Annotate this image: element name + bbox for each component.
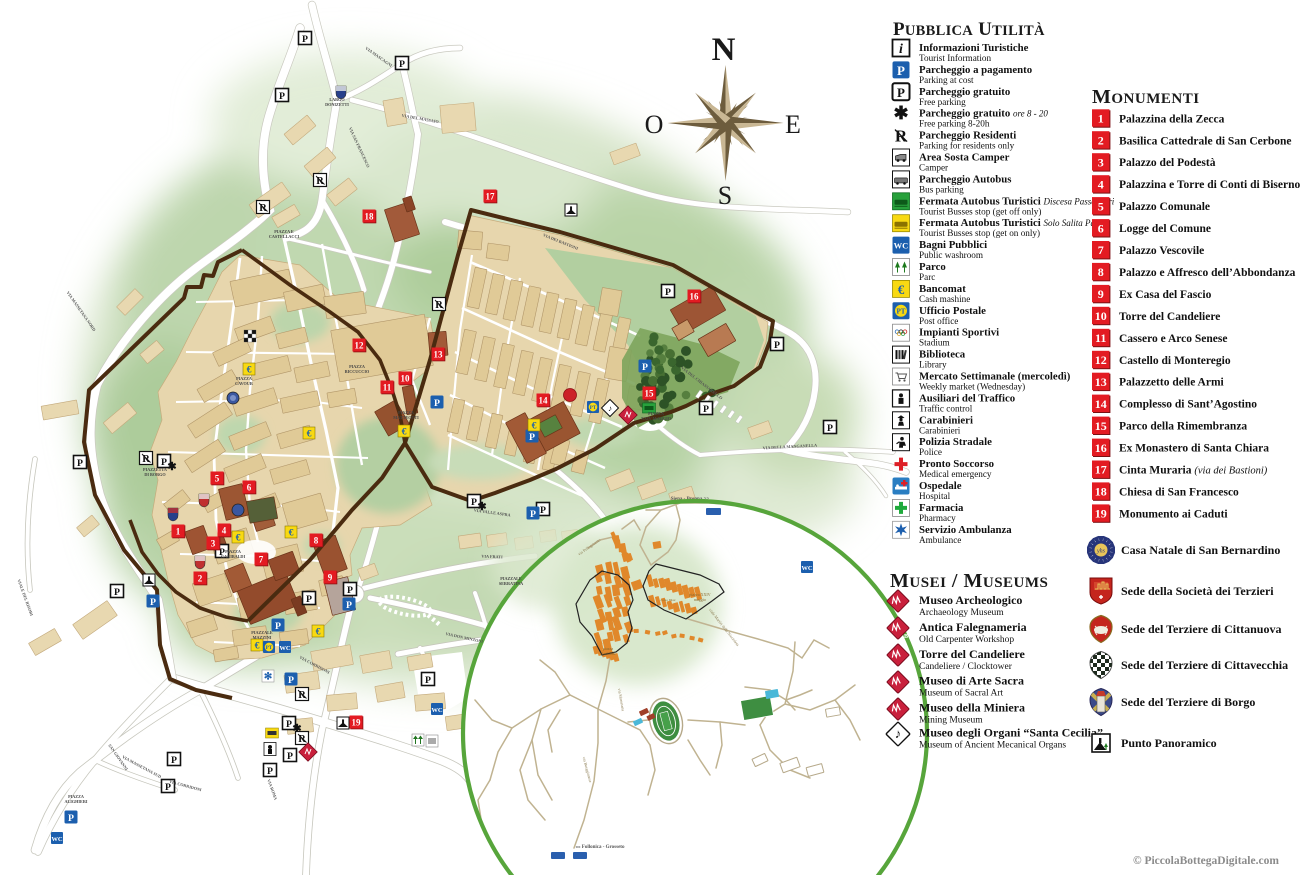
svg-text:P: P bbox=[642, 362, 648, 373]
svg-text:P: P bbox=[434, 398, 440, 409]
svg-text:€: € bbox=[532, 421, 537, 432]
svg-text:WC: WC bbox=[279, 645, 291, 652]
svg-text:2: 2 bbox=[198, 574, 203, 584]
svg-text:P: P bbox=[774, 340, 780, 351]
svg-text:Complesso di Sant’Agostino: Complesso di Sant’Agostino bbox=[1119, 399, 1257, 411]
svg-text:Casa Natale di San Bernardino: Casa Natale di San Bernardino bbox=[1121, 543, 1280, 557]
svg-text:Museum of Sacral Art: Museum of Sacral Art bbox=[919, 688, 1004, 699]
svg-text:Bus parking: Bus parking bbox=[919, 184, 964, 194]
svg-text:SERRATINA: SERRATINA bbox=[499, 581, 523, 586]
svg-text:P: P bbox=[267, 766, 273, 777]
svg-text:corso Diaz: corso Diaz bbox=[660, 598, 676, 602]
svg-text:E: E bbox=[904, 715, 908, 721]
svg-text:Mining Museum: Mining Museum bbox=[919, 716, 983, 726]
svg-text:7: 7 bbox=[259, 555, 264, 565]
svg-text:18: 18 bbox=[365, 212, 375, 222]
svg-text:S: S bbox=[718, 181, 732, 210]
svg-text:Pharmacy: Pharmacy bbox=[919, 513, 956, 523]
svg-text:€: € bbox=[316, 627, 321, 638]
svg-text:VIA FRATI: VIA FRATI bbox=[481, 554, 503, 560]
svg-text:Castello di Monteregio: Castello di Monteregio bbox=[1119, 355, 1231, 367]
svg-text:10: 10 bbox=[401, 374, 411, 384]
svg-text:Ex Casa del Fascio: Ex Casa del Fascio bbox=[1119, 289, 1212, 301]
svg-text:4: 4 bbox=[1098, 177, 1104, 191]
svg-text:© PiccolaBottegaDigitale.com: © PiccolaBottegaDigitale.com bbox=[1133, 855, 1279, 867]
svg-text:P: P bbox=[68, 813, 74, 824]
svg-text:Medical emergency: Medical emergency bbox=[919, 469, 992, 479]
svg-text:Camper: Camper bbox=[919, 163, 948, 173]
svg-text:6: 6 bbox=[247, 483, 252, 493]
svg-text:Parc: Parc bbox=[919, 272, 935, 282]
svg-text:✱: ✱ bbox=[167, 461, 176, 473]
svg-text:17: 17 bbox=[486, 192, 496, 202]
svg-text:3: 3 bbox=[1098, 155, 1104, 169]
svg-text:€: € bbox=[307, 429, 312, 440]
svg-text:Palazzetto delle Armi: Palazzetto delle Armi bbox=[1119, 377, 1225, 389]
svg-text:P: P bbox=[530, 509, 536, 520]
svg-text:Sede del Terziere di Borgo: Sede del Terziere di Borgo bbox=[1121, 695, 1255, 709]
svg-text:€: € bbox=[247, 365, 252, 376]
svg-text:P: P bbox=[279, 91, 285, 102]
svg-text:15: 15 bbox=[1095, 419, 1107, 433]
svg-text:Parco della Rimembranza: Parco della Rimembranza bbox=[1119, 421, 1247, 433]
svg-text:♪: ♪ bbox=[895, 726, 902, 741]
svg-text:P: P bbox=[171, 755, 177, 766]
svg-text:Candeliere / Clocktower: Candeliere / Clocktower bbox=[919, 662, 1013, 672]
svg-text:12: 12 bbox=[1095, 353, 1107, 367]
svg-text:MATTEOTTI: MATTEOTTI bbox=[393, 415, 419, 420]
svg-text:BICCUCCIO: BICCUCCIO bbox=[345, 369, 370, 374]
svg-text:WC: WC bbox=[801, 565, 813, 572]
svg-text:Free parking 8-20h: Free parking 8-20h bbox=[919, 119, 990, 129]
svg-text:Monumento ai Caduti: Monumento ai Caduti bbox=[1119, 508, 1228, 520]
svg-text:Museum of Ancient Mecanical Or: Museum of Ancient Mecanical Organs bbox=[919, 740, 1066, 751]
svg-text:14: 14 bbox=[539, 396, 549, 406]
svg-text:13: 13 bbox=[434, 350, 444, 360]
svg-text:15: 15 bbox=[645, 389, 655, 399]
svg-text:13: 13 bbox=[1095, 375, 1107, 389]
svg-text:P: P bbox=[827, 423, 833, 434]
svg-text:Traffic control: Traffic control bbox=[919, 403, 973, 413]
svg-text:16: 16 bbox=[690, 292, 700, 302]
svg-text:C: C bbox=[904, 661, 908, 667]
svg-text:DONIZETTI: DONIZETTI bbox=[325, 102, 349, 107]
svg-text:E: E bbox=[785, 110, 801, 139]
svg-text:Ambulance: Ambulance bbox=[919, 535, 961, 545]
svg-text:Palazzina e Torre di Conti di: Palazzina e Torre di Conti di Biserno bbox=[1119, 179, 1300, 191]
svg-text:maggio: maggio bbox=[694, 597, 706, 602]
svg-text:7: 7 bbox=[1098, 243, 1104, 257]
svg-text:WC: WC bbox=[431, 707, 443, 714]
svg-text:Ex Monastero di Santa Chiara: Ex Monastero di Santa Chiara bbox=[1119, 443, 1269, 455]
svg-text:PUBBLICA UTILITÀ: PUBBLICA UTILITÀ bbox=[893, 19, 1045, 40]
svg-text:P: P bbox=[540, 505, 546, 516]
svg-text:3: 3 bbox=[211, 539, 216, 549]
svg-text:Basilica Cattedrale di San Cer: Basilica Cattedrale di San Cerbone bbox=[1119, 135, 1292, 147]
svg-text:P: P bbox=[286, 719, 292, 730]
svg-text:GARIBALDI: GARIBALDI bbox=[221, 554, 246, 559]
svg-text:Logge del Comune: Logge del Comune bbox=[1119, 223, 1211, 235]
svg-text:CASTELLACCI: CASTELLACCI bbox=[269, 234, 300, 239]
svg-text:✻: ✻ bbox=[264, 672, 272, 683]
svg-text:€: € bbox=[289, 528, 294, 539]
svg-text:9: 9 bbox=[328, 573, 333, 583]
svg-text:O: O bbox=[645, 110, 664, 139]
svg-text:Museo della Miniera: Museo della Miniera bbox=[919, 701, 1025, 715]
svg-text:19: 19 bbox=[1095, 507, 1107, 521]
svg-text:P: P bbox=[77, 458, 83, 469]
svg-text:P: P bbox=[425, 675, 431, 686]
svg-text:♪: ♪ bbox=[608, 404, 612, 413]
svg-text:B: B bbox=[904, 634, 908, 640]
svg-text:P: P bbox=[665, 287, 671, 298]
svg-text:Hospital: Hospital bbox=[919, 491, 951, 501]
svg-text:Museo degli Organi “Santa Ceci: Museo degli Organi “Santa Cecilia” bbox=[919, 726, 1103, 740]
svg-text:Cassero e Arco Senese: Cassero e Arco Senese bbox=[1119, 333, 1228, 345]
svg-text:P: P bbox=[302, 34, 308, 45]
svg-text:Palazzo e Affresco dell’Abbond: Palazzo e Affresco dell’Abbondanza bbox=[1119, 267, 1296, 279]
svg-text:Stadium: Stadium bbox=[919, 338, 950, 348]
svg-text:Archaeology Museum: Archaeology Museum bbox=[919, 608, 1004, 618]
svg-text:€: € bbox=[255, 641, 260, 652]
svg-text:WC: WC bbox=[894, 241, 909, 251]
svg-text:P: P bbox=[399, 59, 405, 70]
svg-text:Tourist Information: Tourist Information bbox=[919, 53, 991, 63]
svg-text:P: P bbox=[306, 594, 312, 605]
svg-text:9: 9 bbox=[1098, 287, 1104, 301]
svg-text:Antica Falegnameria: Antica Falegnameria bbox=[919, 620, 1027, 634]
svg-text:P: P bbox=[150, 597, 156, 608]
svg-text:€: € bbox=[402, 427, 407, 438]
svg-text:XXIV MAGGIO: XXIV MAGGIO bbox=[641, 416, 672, 421]
svg-text:Palazzo del Podestà: Palazzo del Podestà bbox=[1119, 157, 1216, 169]
svg-text:P: P bbox=[275, 621, 281, 632]
svg-text:8: 8 bbox=[314, 536, 319, 546]
svg-text:P: P bbox=[114, 587, 120, 598]
svg-text:5: 5 bbox=[1098, 199, 1104, 213]
svg-text:P: P bbox=[529, 432, 535, 443]
svg-text:PT: PT bbox=[590, 405, 597, 411]
svg-text:Parking for residents only: Parking for residents only bbox=[919, 141, 1015, 151]
svg-text:Palazzo Vescovile: Palazzo Vescovile bbox=[1119, 245, 1204, 257]
svg-text:✱: ✱ bbox=[893, 103, 908, 123]
svg-text:Old Carpenter Workshop: Old Carpenter Workshop bbox=[919, 635, 1014, 645]
svg-text:Weekly market (Wednesday): Weekly market (Wednesday) bbox=[919, 382, 1025, 392]
svg-text:yhs: yhs bbox=[1096, 549, 1106, 555]
svg-text:Tourist Busses stop (get on on: Tourist Busses stop (get on only) bbox=[919, 228, 1040, 238]
svg-text:PT: PT bbox=[897, 307, 906, 315]
svg-text:Chiesa di San Francesco: Chiesa di San Francesco bbox=[1119, 486, 1239, 498]
svg-text:1: 1 bbox=[176, 527, 181, 537]
svg-text:12: 12 bbox=[355, 341, 365, 351]
svg-text:Parking at cost: Parking at cost bbox=[919, 75, 974, 85]
svg-text:N: N bbox=[712, 32, 736, 68]
svg-text:4: 4 bbox=[222, 526, 227, 536]
svg-text:MAZZINI: MAZZINI bbox=[253, 635, 272, 640]
svg-text:6: 6 bbox=[1098, 221, 1104, 235]
svg-text:17: 17 bbox=[1095, 463, 1107, 477]
svg-text:P: P bbox=[897, 63, 905, 78]
svg-text:11: 11 bbox=[1095, 331, 1106, 345]
svg-text:Police: Police bbox=[919, 447, 942, 457]
svg-text:18: 18 bbox=[1095, 485, 1107, 499]
svg-text:«« Follonica - Grosseto: «« Follonica - Grosseto bbox=[576, 845, 625, 850]
svg-text:i: i bbox=[899, 42, 903, 57]
svg-text:16: 16 bbox=[1095, 441, 1107, 455]
svg-text:Tourist Busses stop (get off o: Tourist Busses stop (get off only) bbox=[919, 206, 1041, 216]
svg-text:Library: Library bbox=[919, 360, 947, 370]
svg-text:Free parking: Free parking bbox=[919, 97, 966, 107]
svg-text:PT: PT bbox=[266, 645, 273, 651]
svg-text:Sede del Terziere di Cittavecc: Sede del Terziere di Cittavecchia bbox=[1121, 658, 1288, 672]
svg-text:A: A bbox=[904, 607, 909, 613]
svg-text:P: P bbox=[897, 85, 905, 100]
svg-text:Palazzo Comunale: Palazzo Comunale bbox=[1119, 201, 1210, 213]
svg-text:Punto Panoramico: Punto Panoramico bbox=[1121, 736, 1217, 750]
svg-text:Cash mashine: Cash mashine bbox=[919, 294, 970, 304]
svg-text:Torre del Candeliere: Torre del Candeliere bbox=[919, 647, 1025, 661]
svg-text:Sede della Società dei Terzier: Sede della Società dei Terzieri bbox=[1121, 584, 1274, 598]
svg-text:10: 10 bbox=[1095, 309, 1107, 323]
svg-text:Public washroom: Public washroom bbox=[919, 250, 983, 260]
svg-text:WC: WC bbox=[51, 836, 63, 843]
svg-text:CAVOUR: CAVOUR bbox=[235, 381, 254, 386]
svg-text:Carabinieri: Carabinieri bbox=[919, 425, 961, 435]
svg-text:11: 11 bbox=[383, 383, 392, 393]
svg-text:€: € bbox=[898, 282, 905, 297]
svg-text:19: 19 bbox=[352, 718, 362, 728]
svg-text:1: 1 bbox=[1098, 112, 1104, 126]
svg-text:P: P bbox=[346, 600, 352, 611]
svg-text:5: 5 bbox=[215, 474, 220, 484]
svg-text:8: 8 bbox=[1098, 265, 1104, 279]
svg-text:DI BORGO: DI BORGO bbox=[144, 472, 166, 477]
svg-text:P: P bbox=[347, 585, 353, 596]
svg-text:Torre del Candeliere: Torre del Candeliere bbox=[1119, 311, 1220, 323]
svg-text:€: € bbox=[236, 533, 241, 544]
svg-text:P: P bbox=[288, 675, 294, 686]
svg-text:Sede del Terziere di Cittanuov: Sede del Terziere di Cittanuova bbox=[1121, 622, 1281, 636]
svg-text:P: P bbox=[703, 404, 709, 415]
svg-text:ALIGHIERI: ALIGHIERI bbox=[64, 799, 87, 804]
svg-text:D: D bbox=[904, 688, 909, 694]
svg-text:Museo Archeologico: Museo Archeologico bbox=[919, 593, 1022, 607]
svg-text:Cinta Muraria (via dei Bastion: Cinta Muraria (via dei Bastioni) bbox=[1119, 465, 1268, 477]
svg-text:Palazzina della Zecca: Palazzina della Zecca bbox=[1119, 113, 1225, 125]
svg-text:14: 14 bbox=[1095, 397, 1107, 411]
svg-text:Garibaldi: Garibaldi bbox=[600, 651, 616, 656]
svg-text:P: P bbox=[471, 497, 477, 508]
svg-text:P: P bbox=[287, 751, 293, 762]
svg-text:Post office: Post office bbox=[919, 316, 958, 326]
svg-text:2: 2 bbox=[1098, 133, 1104, 147]
svg-text:Museo di Arte Sacra: Museo di Arte Sacra bbox=[919, 674, 1024, 688]
